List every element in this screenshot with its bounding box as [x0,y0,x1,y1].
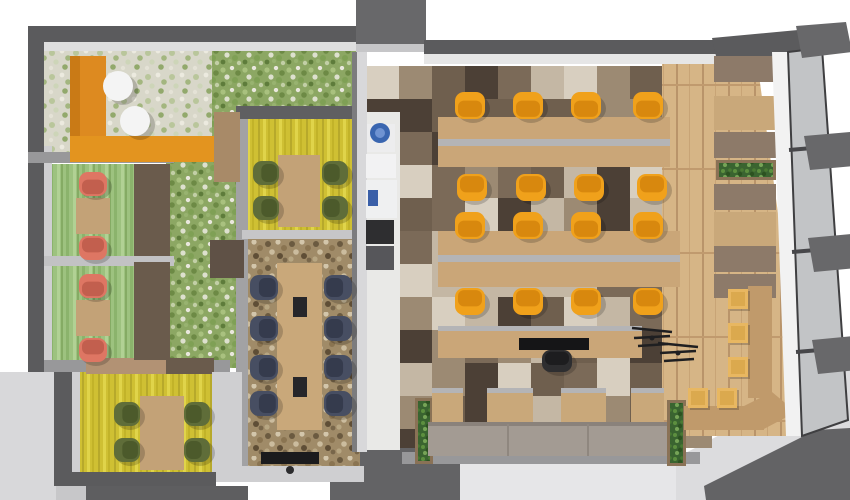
lounge-round-table [103,71,133,101]
booth-desk-2 [76,300,110,336]
bar-stool [728,323,750,345]
vending-unit [366,246,394,270]
wall-top-right-face [424,54,716,64]
cabinet-small-meeting-dark [166,358,214,374]
carpet-tile [399,66,432,99]
wall-top-left-face [42,42,362,51]
window-booth-table [714,212,776,246]
booth-cabinet-2 [134,262,170,360]
printer [366,154,396,178]
bar-stool [717,388,739,410]
focus-room-wardrobe [214,112,240,182]
wall-left [28,26,44,372]
bar-counter-vertical [748,286,772,398]
carpet-tile [366,66,399,99]
wall-focus-room-top [236,106,364,119]
bar-table-rail [631,388,664,393]
exterior-steps-area-left [0,372,58,500]
small-meeting-table [140,396,184,470]
entry-block-top [356,0,426,46]
carpet-tile [399,264,432,297]
planter-box [667,400,686,466]
carpet-tile [399,330,432,363]
booth-desk-1 [76,198,110,234]
window-bench [428,426,668,456]
carpet-tile [399,231,432,264]
window-booth-bench [714,132,776,158]
bench-desk-1-divider [438,139,670,146]
window-booth-bench [714,246,776,272]
wall-top-right [424,40,716,54]
bar-table-rail [432,388,463,393]
window-booth-table [714,96,776,130]
carpet-tile [399,198,432,231]
wall-focus-meeting-divider [242,230,362,239]
bar-stool [688,388,710,410]
meeting-sideboard [210,240,244,278]
bench-desk-2-divider [438,255,680,262]
focus-room-table [278,155,320,227]
bench-desk-3-rail [438,326,642,331]
wall-left-lower-face [72,372,80,472]
desk-monitor [519,338,589,350]
facade-pillar [812,336,850,374]
exterior-curb-bottom-left [86,486,248,500]
wall-bottom-left [54,472,216,486]
meeting-table [277,263,322,430]
carpet-tile [399,99,432,132]
water-cooler-bottle-cap [375,128,385,138]
bar-stool [728,357,750,379]
booth-cabinet-1 [134,164,170,256]
facade-pillar [804,132,850,170]
window-booth-bench [714,184,776,210]
meeting-tv-stand [286,466,294,474]
fridge-label [368,190,378,206]
wall-top-left [28,26,364,42]
entry-block-face [356,44,426,52]
carpet-tile [399,132,432,165]
floor-plan-canvas [0,0,850,500]
wall-meeting-bottom [236,466,364,482]
meeting-cable-port [293,377,307,397]
bar-table-rail [561,388,606,393]
wall-small-meeting-right [212,372,242,482]
carpet-tile [399,297,432,330]
floor-plan-scene [0,0,850,500]
window-booth-bench [714,56,776,82]
exterior-walkway-entrance [460,462,690,500]
coffee-machine [366,220,394,244]
lounge-round-table [120,106,150,136]
meeting-tv [261,452,319,464]
carpet-tile [399,165,432,198]
meeting-cable-port [293,297,307,317]
wall-left-lower [54,360,72,486]
carpet-tile [597,66,630,99]
wall-main-divider-edge [352,52,357,452]
bar-table-rail [487,388,533,393]
bar-stool [728,289,750,311]
planter-box [716,160,776,180]
carpet-tile [399,363,432,396]
lounge-sofa-horizontal [70,136,232,162]
facade-pillar [796,22,850,58]
facade-pillar [808,234,850,272]
wall-main-divider [357,52,367,452]
